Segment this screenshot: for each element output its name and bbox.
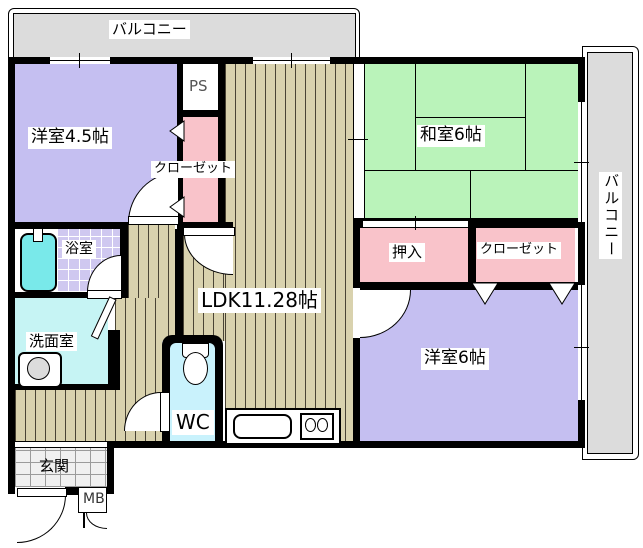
western-room-6-label: 洋室6帖 xyxy=(421,348,489,370)
fold-mark-left-icon xyxy=(170,197,184,217)
fold-mark-down-icon xyxy=(472,283,498,304)
closet-right-label: クローゼット xyxy=(477,242,561,259)
meter-box-label: MB xyxy=(80,490,108,508)
japanese-room-label: 和室6帖 xyxy=(417,125,485,147)
closet-door-marks xyxy=(0,0,643,548)
washroom-label: 洗面室 xyxy=(26,332,77,351)
balcony-right-label: バルコニー xyxy=(599,172,622,259)
balcony-top-label: バルコニー xyxy=(109,20,190,39)
bathroom-label: 浴室 xyxy=(62,240,96,258)
floor-plan: バルコニー バルコニー xyxy=(0,0,643,548)
fold-mark-left-icon xyxy=(170,121,184,141)
wc-label: WC xyxy=(172,410,214,435)
entrance-label: 玄関 xyxy=(36,457,72,476)
oshiire-label: 押入 xyxy=(389,243,425,262)
fold-mark-down-icon xyxy=(549,283,575,304)
pipe-space-label: PS xyxy=(186,77,211,96)
western-room-4-5-label: 洋室4.5帖 xyxy=(28,127,112,149)
ldk-label: LDK11.28帖 xyxy=(198,288,321,313)
closet-left-label: クローゼット xyxy=(151,161,235,178)
